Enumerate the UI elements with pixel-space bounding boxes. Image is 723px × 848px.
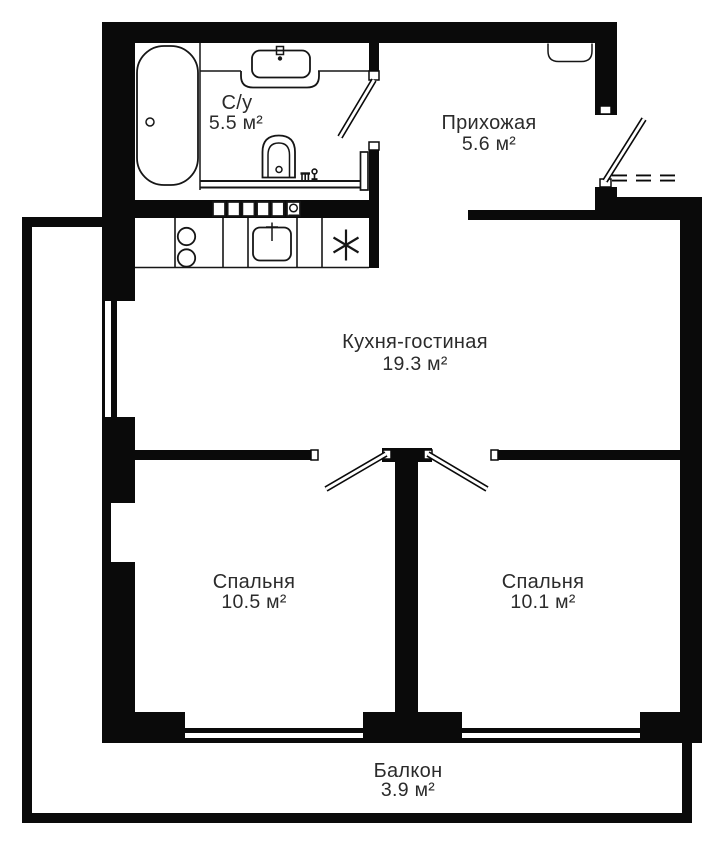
- balcony-wall-bottom: [22, 813, 692, 823]
- balcony-area: 3.9 м²: [381, 779, 435, 801]
- bathtub-drain: [146, 118, 154, 126]
- bedroom1-label: Спальня: [213, 571, 295, 593]
- bedroom2-door-leaf-icon: [428, 454, 487, 489]
- bathroom-door-hinge: [369, 71, 379, 80]
- hob-two-burner-icon: [178, 228, 195, 267]
- towel-radiator-icon: [361, 152, 369, 190]
- kitchen-living-area: 19.3 м²: [382, 353, 448, 375]
- hallway-fixtures: [548, 44, 592, 62]
- bathroom-faucet-dot: [278, 56, 282, 60]
- kitchen-sink-icon: [253, 223, 291, 261]
- window-bottom-left-line1: [185, 728, 363, 733]
- floor-plan-canvas: С/у 5.5 м² Прихожая 5.6 м² Кухня-гостина…: [0, 0, 723, 848]
- fridge-asterisk-icon: [334, 230, 359, 261]
- bedroom1-door-leaf-icon: [326, 454, 386, 489]
- bedroom1-area: 10.5 м²: [221, 591, 287, 613]
- bathroom-area: 5.5 м²: [209, 112, 263, 134]
- balcony-wall-right: [682, 743, 692, 823]
- hallway-bottom-wall: [468, 210, 598, 220]
- bedroom2-area: 10.1 м²: [510, 591, 576, 613]
- hallway-area: 5.6 м²: [462, 133, 516, 155]
- floor-plan: С/у 5.5 м² Прихожая 5.6 м² Кухня-гостина…: [0, 0, 723, 848]
- bathroom-door-jamb: [369, 142, 379, 150]
- kitchen-living-label: Кухня-гостиная: [342, 331, 488, 353]
- window-left-kitchen-line1: [102, 301, 105, 417]
- partition-bedroom1: [135, 450, 312, 460]
- wall-left-upper: [102, 22, 135, 301]
- hallway-label: Прихожая: [441, 112, 536, 134]
- wall-top-right-band: [617, 197, 702, 220]
- bedroom2-door-jamb: [491, 450, 498, 460]
- wall-right: [680, 220, 702, 743]
- window-left-kitchen-line2: [111, 301, 117, 417]
- entry-door-leaf-icon: [605, 119, 681, 181]
- entry-stub-upper: [595, 43, 617, 115]
- window-bottom-left-line2: [185, 738, 363, 743]
- wall-left-lower: [102, 562, 135, 712]
- bedroom1-door-jamb: [311, 450, 318, 460]
- closet-niche-icon: [548, 44, 592, 62]
- partition-bedroom2: [498, 450, 680, 460]
- wall-top: [102, 22, 617, 43]
- window-bottom-right-line1: [462, 728, 640, 733]
- wall-bedroom-divider: [395, 458, 418, 712]
- window-bottom-right-line2: [462, 738, 640, 743]
- bathtub-icon: [137, 46, 198, 185]
- walls: [22, 22, 702, 823]
- bedroom2-label: Спальня: [502, 571, 584, 593]
- entry-door-jamb-upper: [600, 106, 611, 114]
- bathroom-right-wall-lower: [369, 150, 379, 268]
- balcony-wall-tick: [22, 217, 102, 227]
- toilet-dot: [276, 167, 282, 173]
- bathroom-label: С/у: [222, 92, 253, 114]
- balcony-wall-left: [22, 217, 32, 823]
- wall-corner-bottom-left: [102, 712, 185, 743]
- kitchen-counter: [135, 218, 369, 268]
- wall-left-pier: [102, 417, 135, 503]
- wall-pier-bottom-center: [363, 712, 462, 743]
- washer-taps-icon: [301, 169, 318, 180]
- window-left-bedroom-line: [102, 503, 111, 562]
- entry-stub-lower: [595, 187, 617, 220]
- bathroom-door-leaf-icon: [340, 80, 374, 137]
